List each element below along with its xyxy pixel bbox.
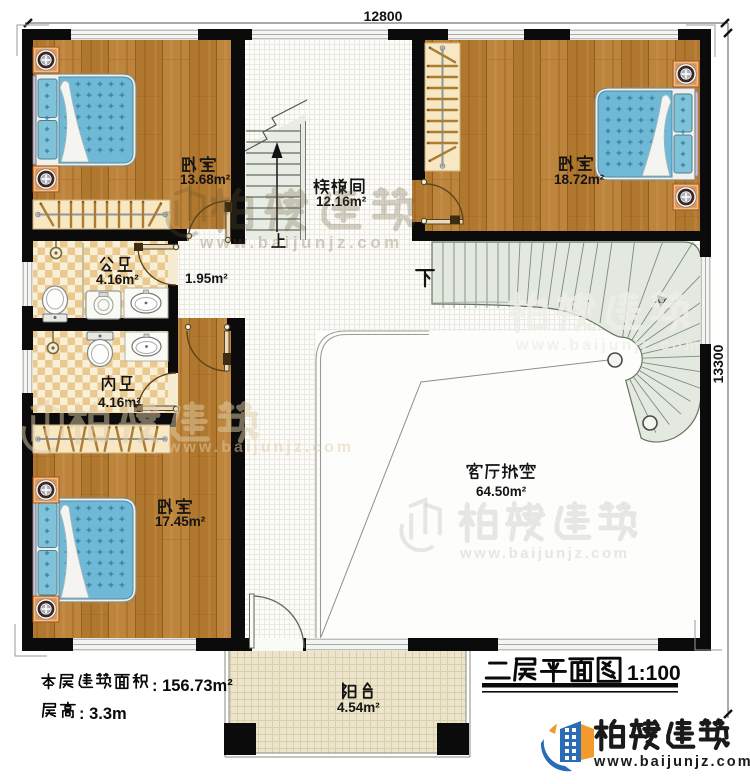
- svg-text:4.16m²: 4.16m²: [96, 272, 139, 287]
- svg-text:18.72m²: 18.72m²: [554, 172, 605, 187]
- svg-text:1:100: 1:100: [627, 662, 681, 685]
- svg-text:64.50m²: 64.50m²: [476, 484, 527, 499]
- svg-text:13.68m²: 13.68m²: [180, 172, 231, 187]
- svg-text:12800: 12800: [364, 8, 403, 24]
- svg-text:17.45m²: 17.45m²: [155, 514, 206, 529]
- svg-text:www.baijunjz.com: www.baijunjz.com: [199, 233, 403, 252]
- svg-text:4.54m²: 4.54m²: [337, 700, 380, 715]
- svg-text:1.95m²: 1.95m²: [185, 271, 228, 286]
- svg-text:www.baijunjz.com: www.baijunjz.com: [593, 754, 750, 770]
- svg-text:: 3.3m: : 3.3m: [79, 705, 127, 723]
- svg-text:www.baijunjz.com: www.baijunjz.com: [167, 439, 354, 456]
- svg-text:www.baijunjz.com: www.baijunjz.com: [515, 337, 702, 354]
- svg-text:13300: 13300: [710, 344, 726, 383]
- svg-text:: 156.73m²: : 156.73m²: [152, 677, 233, 695]
- svg-text:www.baijunjz.com: www.baijunjz.com: [459, 545, 629, 562]
